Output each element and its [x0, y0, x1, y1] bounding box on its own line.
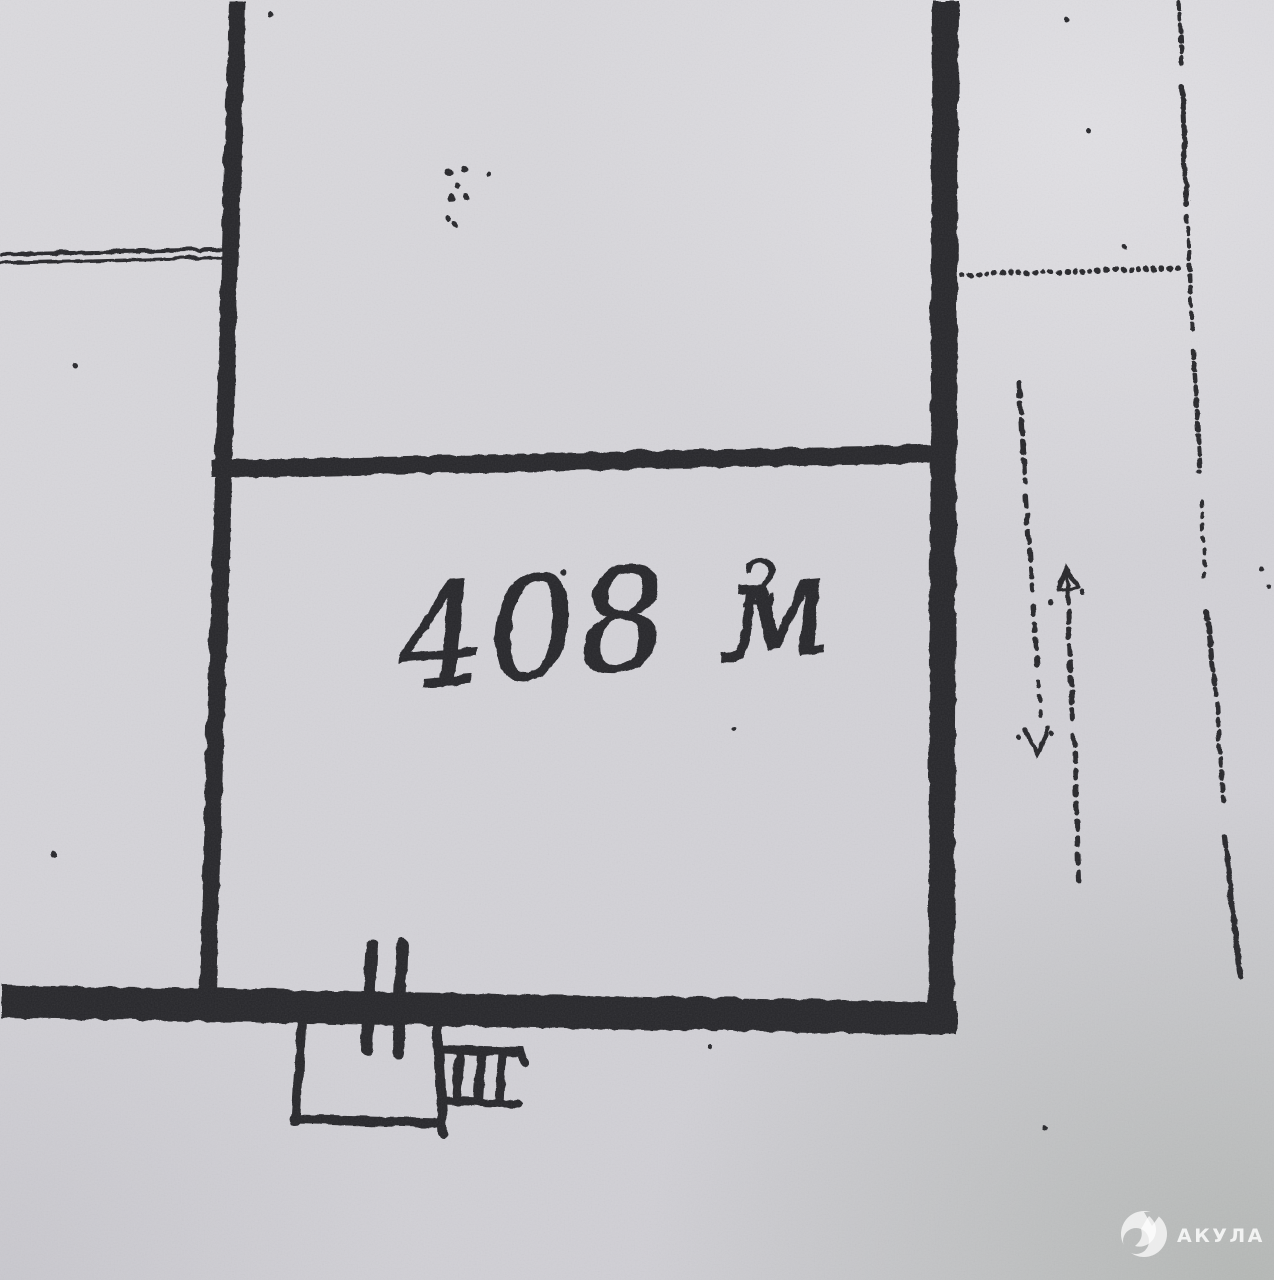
shark-logo-icon	[1121, 1211, 1167, 1257]
floorplan-drawing: 408 м 2	[0, 0, 1274, 1280]
watermark-text: АКУЛА	[1177, 1225, 1265, 1247]
paper-grain-overlay	[0, 0, 1274, 1280]
floorplan-photo: 408 м 2	[0, 0, 1274, 1280]
